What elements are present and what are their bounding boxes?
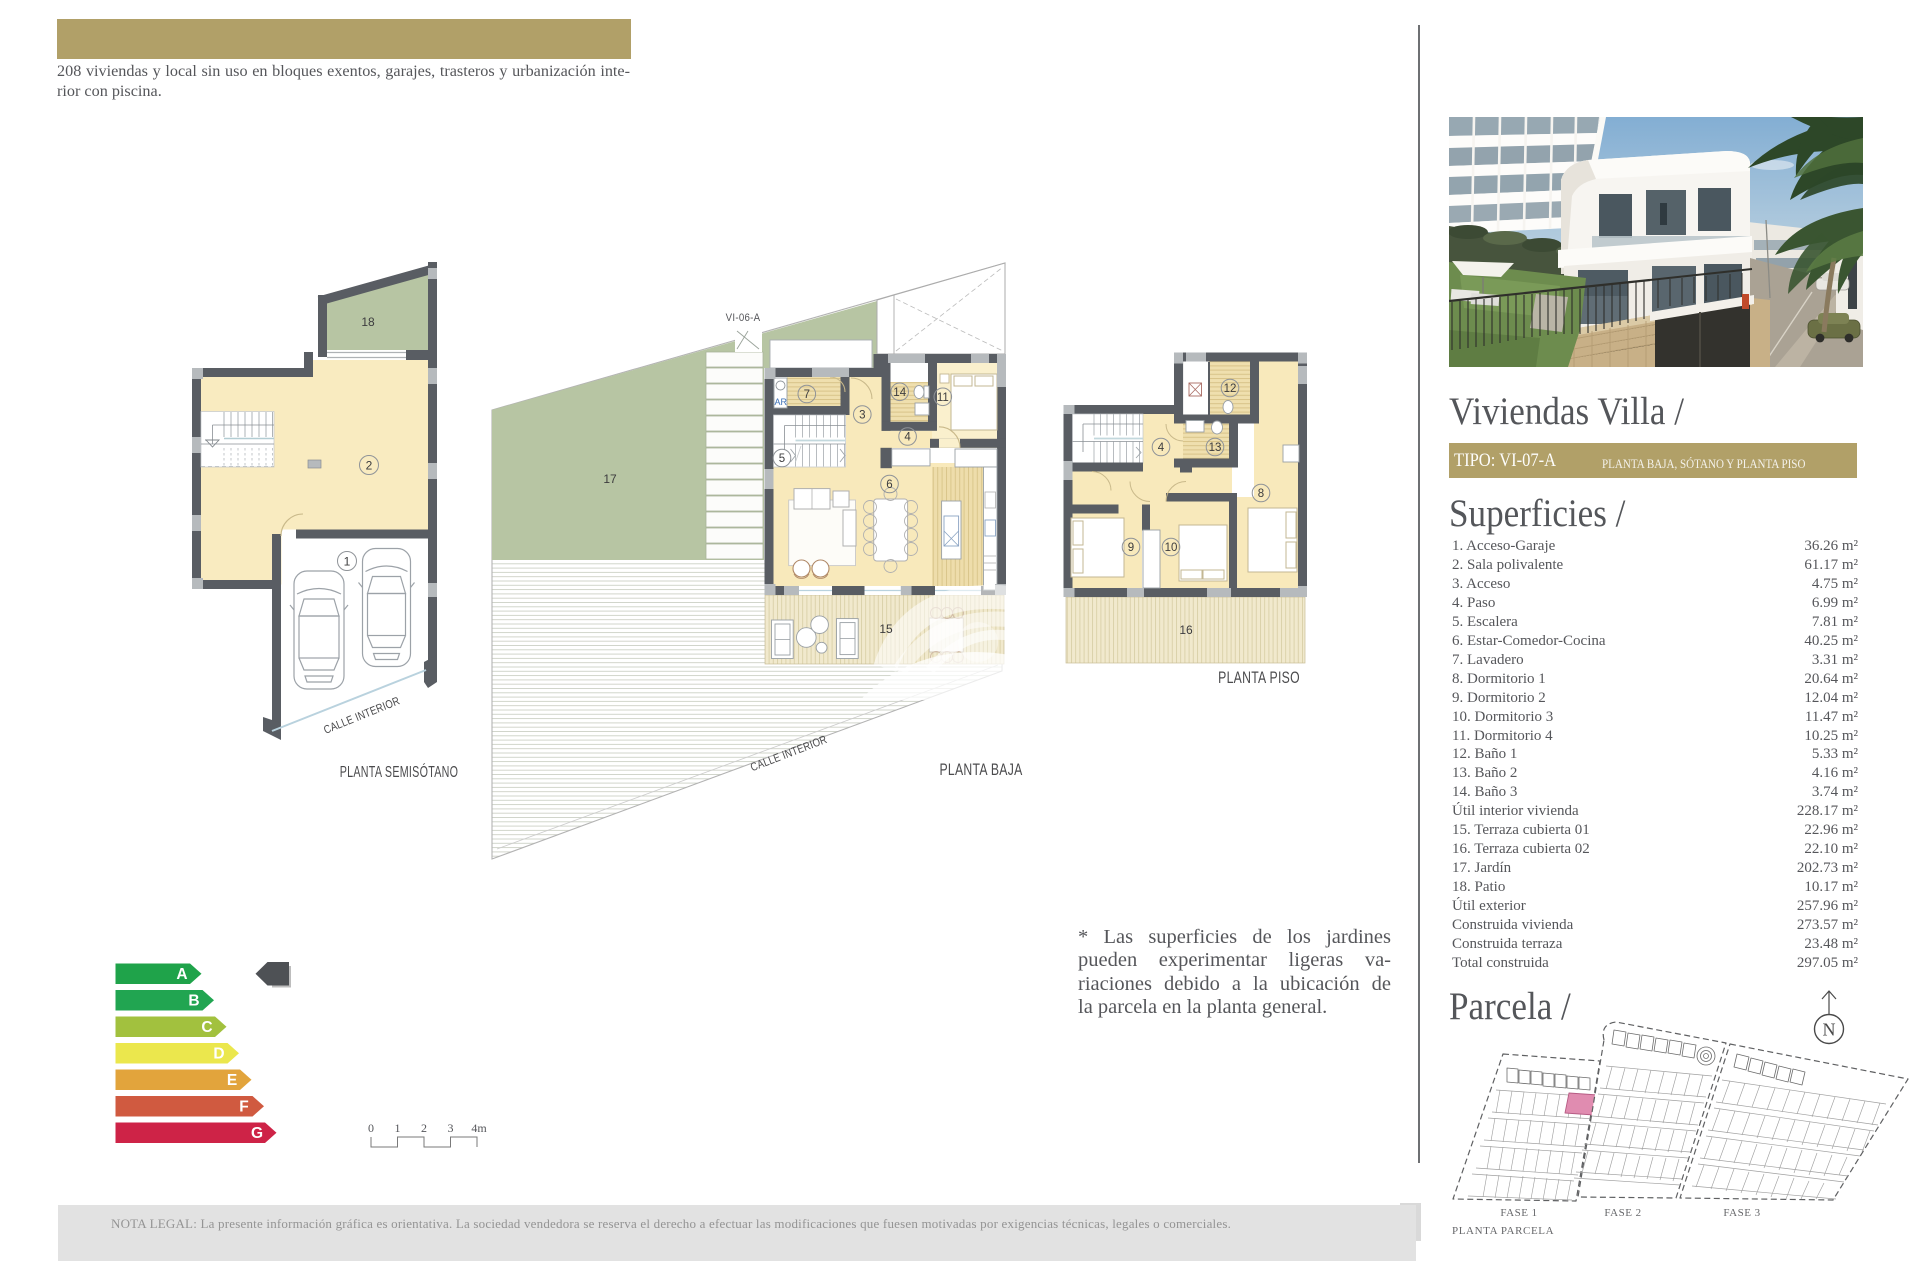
svg-text:8: 8 (1258, 488, 1264, 500)
svg-text:12: 12 (1224, 383, 1237, 395)
svg-text:N: N (1823, 1020, 1836, 1040)
svg-text:10: 10 (1165, 542, 1178, 554)
svg-text:16: 16 (1179, 623, 1193, 637)
svg-text:13: 13 (1209, 442, 1222, 454)
svg-text:9: 9 (1128, 542, 1134, 554)
svg-text:4: 4 (1158, 442, 1165, 454)
